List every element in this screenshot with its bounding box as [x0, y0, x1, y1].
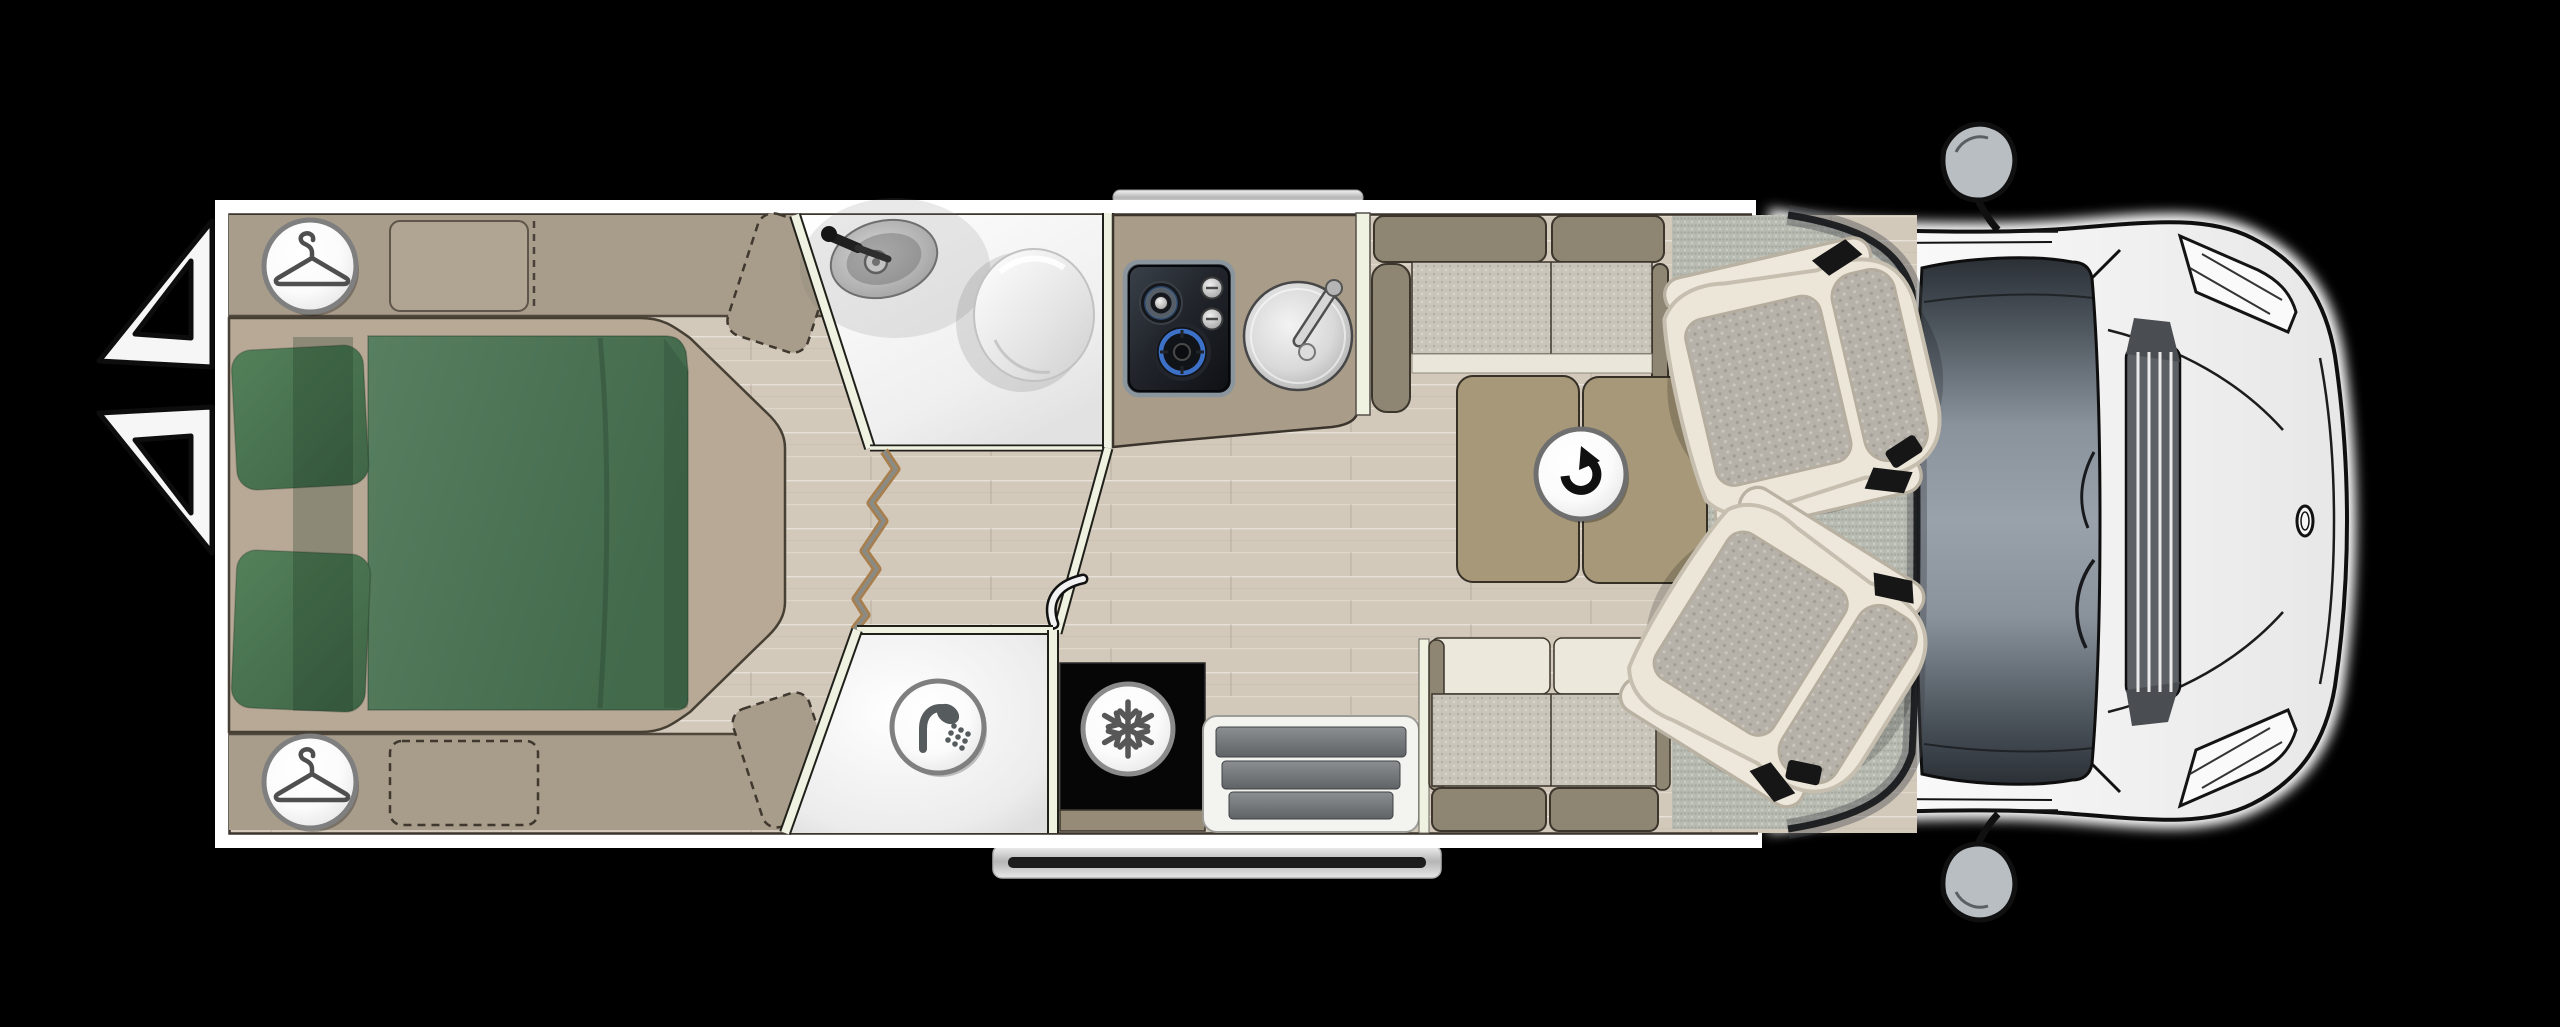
bench-armrest-left	[1372, 264, 1410, 412]
duvet-edge-shade	[664, 338, 688, 708]
duvet-fold-sash	[293, 337, 353, 711]
windshield	[1916, 258, 2100, 785]
duvet	[368, 336, 688, 710]
bench-front-trim	[1412, 354, 1652, 373]
floorplan-graphic: Wardrobe Wardrobe Shower	[0, 0, 2560, 1027]
wardrobe-icon-bottom: Wardrobe	[264, 736, 359, 832]
table-rotate-icon-badge: Swivel table	[1536, 429, 1629, 523]
hob	[1125, 262, 1233, 395]
fridge-icon-badge: Fridge	[1083, 684, 1173, 774]
bench2-base-2	[1550, 788, 1658, 831]
bench2-base-1	[1432, 788, 1546, 831]
kitchen-partition	[1356, 213, 1370, 415]
wardrobe-icon-top: Wardrobe	[264, 220, 359, 316]
floorplan-canvas: Wardrobe Wardrobe Shower	[0, 0, 2560, 1027]
bench2-seat-cushions	[1432, 694, 1656, 786]
bench-backrest-1	[1374, 216, 1546, 262]
bench-backrest-2	[1552, 216, 1664, 262]
bench-partition	[1419, 639, 1429, 833]
overhead-locker-door	[390, 221, 528, 311]
entry-step-exterior	[993, 845, 1441, 878]
brand-badge	[2297, 506, 2313, 536]
shower-icon-badge: Shower	[892, 681, 987, 777]
grille	[2126, 318, 2180, 726]
bench-headrest-1	[1431, 638, 1550, 694]
hob-burner-large	[1154, 324, 1210, 380]
hob-burner-small	[1140, 282, 1182, 324]
locker-door-dashed	[390, 741, 538, 825]
bench-seat-cushions	[1412, 262, 1652, 354]
fridge-plinth	[1060, 810, 1205, 831]
entry-step-interior	[1203, 716, 1419, 832]
double-bed	[229, 318, 785, 732]
kitchen	[1113, 213, 1370, 447]
faucet-pivot	[1326, 280, 1342, 296]
sink-drain	[1299, 344, 1315, 360]
toilet	[974, 249, 1094, 381]
kitchen-sink	[1244, 280, 1352, 390]
